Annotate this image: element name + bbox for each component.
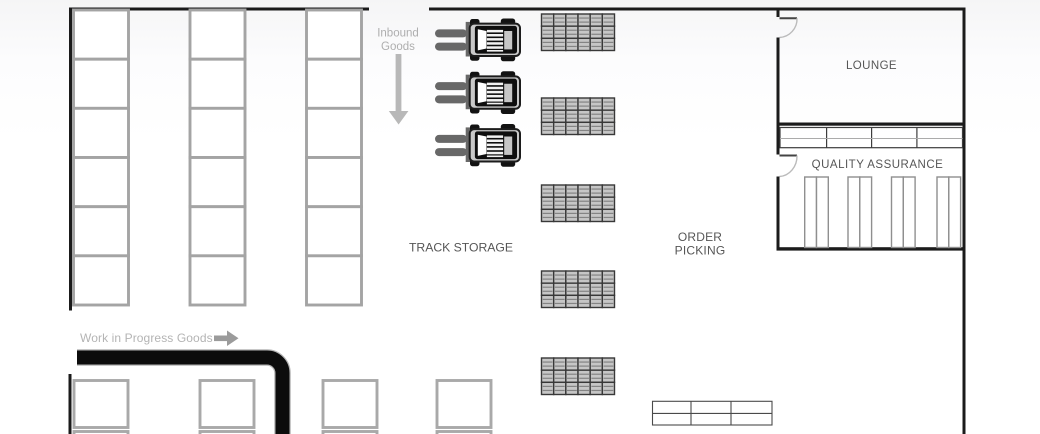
svg-text:PICKING: PICKING (675, 244, 726, 258)
svg-text:Goods: Goods (381, 41, 415, 53)
svg-text:Inbound: Inbound (377, 28, 419, 40)
svg-text:LOUNGE: LOUNGE (846, 60, 897, 72)
svg-text:TRACK STORAGE: TRACK STORAGE (409, 241, 513, 255)
svg-text:Work in Progress Goods: Work in Progress Goods (80, 331, 213, 345)
svg-text:QUALITY ASSURANCE: QUALITY ASSURANCE (812, 159, 944, 171)
svg-text:ORDER: ORDER (678, 230, 722, 244)
